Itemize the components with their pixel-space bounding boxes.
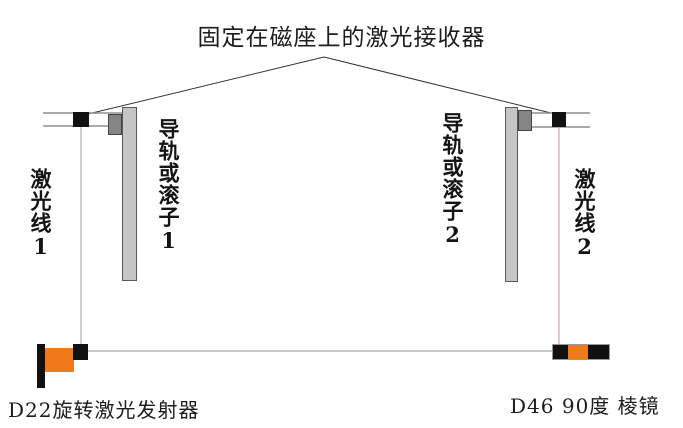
- label-laser-line-2: 激光线2: [574, 168, 595, 260]
- prism-assembly: [552, 344, 610, 360]
- right-laser-receiver: [518, 110, 532, 131]
- transmitter-base-bar: [37, 344, 45, 388]
- guide-rail-1-bar: [122, 107, 137, 281]
- label-guide-rail-1: 导轨或滚子1: [158, 118, 179, 254]
- prism-left-block: [553, 345, 568, 359]
- prism-right-block: [588, 345, 609, 359]
- label-guide-rail-2: 导轨或滚子2: [442, 112, 463, 248]
- label-laser-line-1: 激光线1: [30, 168, 51, 260]
- left-laser-receiver: [108, 114, 122, 135]
- guide-rail-2-bar: [505, 107, 518, 282]
- transmitter-body: [45, 348, 74, 372]
- prism-body: [568, 345, 588, 359]
- transmitter-head-block: [73, 344, 88, 360]
- right-mount-clamp-block: [552, 112, 566, 127]
- left-mount-clamp-block: [73, 112, 89, 127]
- label-prism: D46 90度 棱镜: [510, 390, 660, 419]
- label-transmitter: D22旋转激光发射器: [8, 394, 199, 423]
- pointer-line-left: [88, 57, 324, 114]
- diagram-canvas: 固定在磁座上的激光接收器 激光线1 导轨或滚子1 导轨或滚子2 激光线2 D22…: [0, 0, 683, 428]
- pointer-line-right: [324, 57, 551, 113]
- diagram-title: 固定在磁座上的激光接收器: [0, 18, 683, 52]
